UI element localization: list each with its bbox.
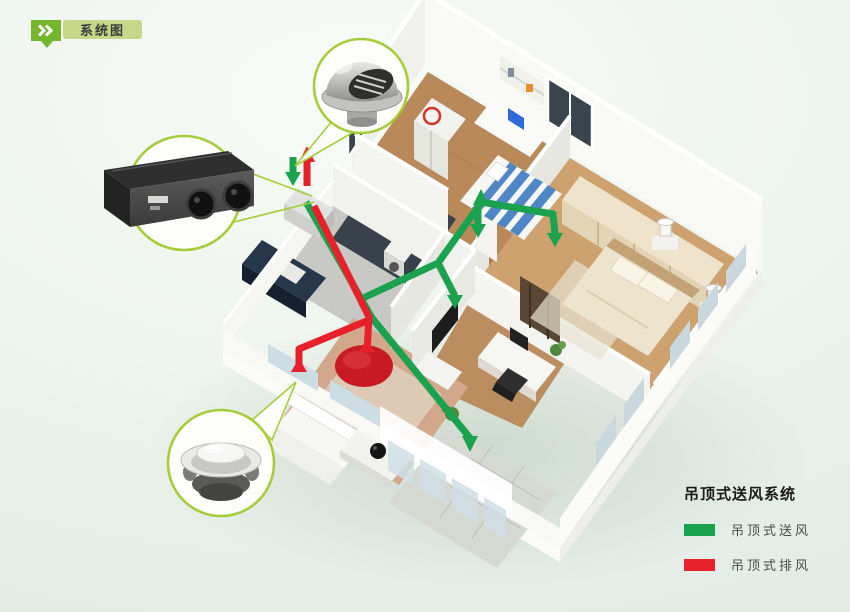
supply-color-swatch <box>684 524 715 536</box>
callout-outdoor-vent-cap <box>314 39 408 133</box>
legend-item-exhaust: 吊顶式排风 <box>684 555 844 574</box>
callout-ventilation-unit <box>104 136 254 250</box>
section-badge: 系统图 <box>31 20 142 41</box>
arrow-down <box>285 172 301 186</box>
supply-label: 吊顶式送风 <box>731 520 811 539</box>
exhaust-color-swatch <box>684 559 715 571</box>
double-chevron-icon <box>31 20 61 41</box>
callout-ceiling-diffuser <box>168 410 274 516</box>
kettle <box>370 443 386 459</box>
legend-item-supply: 吊顶式送风 <box>684 520 844 539</box>
page: 系统图 吊顶式送风系统 吊顶式送风 吊顶式排风 <box>0 0 850 612</box>
exhaust-label: 吊顶式排风 <box>731 555 811 574</box>
legend: 吊顶式送风系统 吊顶式送风 吊顶式排风 <box>684 483 844 574</box>
legend-title: 吊顶式送风系统 <box>684 483 844 504</box>
section-title: 系统图 <box>63 20 142 39</box>
